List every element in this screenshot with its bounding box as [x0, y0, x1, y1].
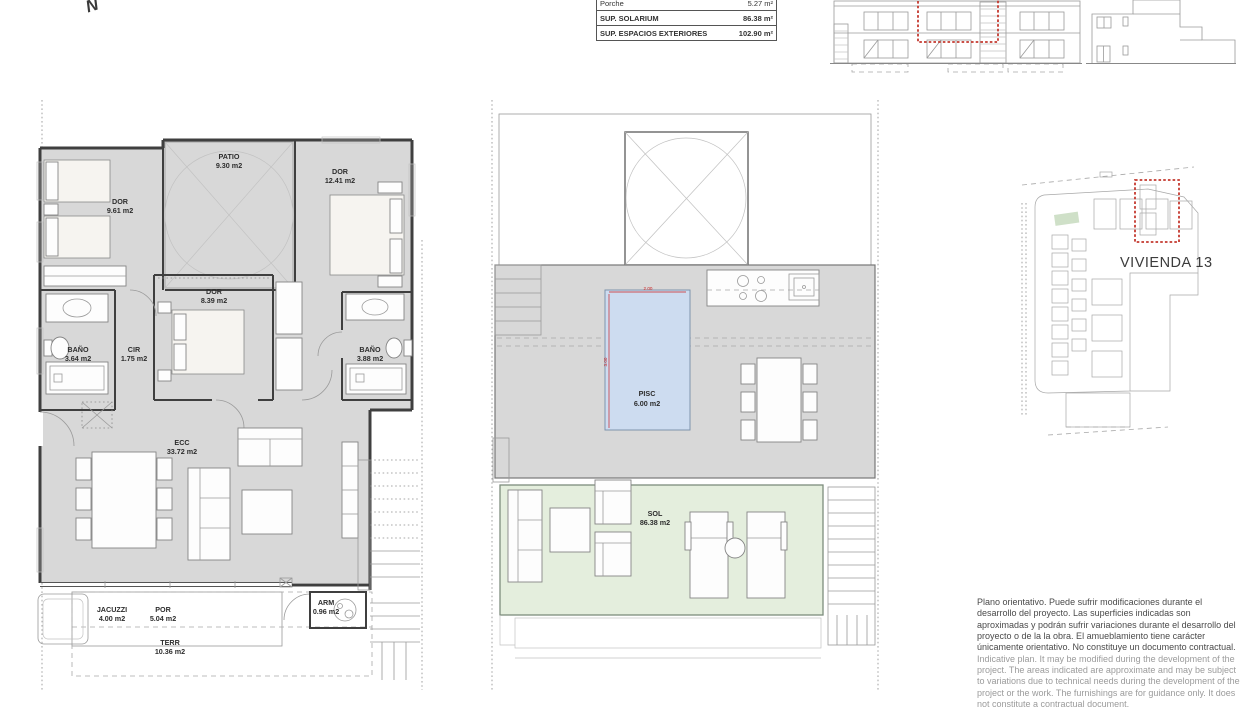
- room-label: BAÑO: [67, 345, 89, 354]
- room-area: 3.64 m2: [65, 354, 91, 363]
- table-row-label: SUP. SOLARIUM: [600, 14, 659, 23]
- room-label: PISC: [639, 389, 656, 398]
- building-cluster: [1035, 189, 1198, 427]
- disclaimer: Plano orientativo. Puede sufrir modifica…: [977, 597, 1240, 710]
- room-area: 10.36 m2: [155, 647, 185, 656]
- room-label: PATIO: [219, 152, 240, 161]
- room-label: POR: [155, 605, 171, 614]
- room-area: 5.04 m2: [150, 614, 176, 623]
- table-row: SUP. SOLARIUM 86.38 m²: [597, 10, 776, 25]
- elevation-windows-upper: [864, 12, 1064, 30]
- elevation-stair-hatch: [834, 2, 1006, 63]
- pool-width-dim: 2.00: [644, 286, 653, 291]
- site-plan: VIVIENDA 13: [1008, 155, 1238, 450]
- solarium-stairs: [828, 487, 875, 645]
- room-area: 12.41 m2: [325, 176, 355, 185]
- disclaimer-english: Indicative plan. It may be modified duri…: [977, 654, 1240, 711]
- table-row-label: SUP. ESPACIOS EXTERIORES: [600, 29, 707, 38]
- room-area: 9.30 m2: [216, 161, 242, 170]
- table-row-value: 5.27 m²: [748, 0, 773, 8]
- outdoor-dining-table: [741, 358, 817, 442]
- room-label: DOR: [332, 167, 349, 176]
- room-area: 86.38 m2: [640, 518, 670, 527]
- pool: 2.00 3.00 PISC 6.00 m2: [603, 286, 690, 430]
- table-row-value: 102.90 m²: [739, 29, 773, 38]
- room-area: 6.00 m2: [634, 399, 660, 408]
- surface-table: Porche 5.27 m² SUP. SOLARIUM 86.38 m² SU…: [596, 0, 777, 41]
- room-area: 8.39 m2: [201, 296, 227, 305]
- building-elevation-drawing: [830, 0, 1240, 92]
- unit-label: VIVIENDA 13: [1120, 255, 1213, 271]
- room-label: ECC: [174, 438, 189, 447]
- room-area: 33.72 m2: [167, 447, 197, 456]
- table-row-label: Porche: [600, 0, 624, 8]
- side-elevation: [1086, 0, 1236, 64]
- room-label: CIR: [128, 345, 141, 354]
- disclaimer-spanish: Plano orientativo. Puede sufrir modifica…: [977, 597, 1240, 654]
- room-label: DOR: [206, 287, 223, 296]
- room-label: DOR: [112, 197, 129, 206]
- roof-band: [499, 114, 871, 265]
- room-area: 3.88 m2: [357, 354, 383, 363]
- room-label: JACUZZI: [97, 605, 127, 614]
- plan-sheet: N Porche 5.27 m² SUP. SOLARIUM 86.38 m² …: [0, 0, 1240, 720]
- main-floor-plan: DOR 9.61 m2 PATIO 9.30 m2 DOR 12.41 m2 D…: [30, 100, 450, 690]
- room-label: SOL: [648, 509, 663, 518]
- table-row: Porche 5.27 m²: [597, 0, 776, 10]
- room-area: 0.96 m2: [313, 607, 339, 616]
- table-row-value: 86.38 m²: [743, 14, 773, 23]
- table-row: SUP. ESPACIOS EXTERIORES 102.90 m²: [597, 25, 776, 40]
- bedroom2-furniture: [330, 182, 404, 287]
- room-area: 9.61 m2: [107, 206, 133, 215]
- roof-edge: [500, 615, 821, 658]
- room-label: BAÑO: [359, 345, 381, 354]
- north-label: N: [83, 0, 101, 16]
- room-area: 1.75 m2: [121, 354, 147, 363]
- pool-length-dim: 3.00: [603, 357, 608, 366]
- north-arrow-icon: N: [83, 0, 101, 17]
- room-area: 4.00 m2: [99, 614, 125, 623]
- outdoor-kitchen: [707, 270, 819, 306]
- room-label: TERR: [160, 638, 180, 647]
- room-label: ARM: [318, 598, 334, 607]
- solarium-floor-plan: 2.00 3.00 PISC 6.00 m2: [485, 100, 885, 690]
